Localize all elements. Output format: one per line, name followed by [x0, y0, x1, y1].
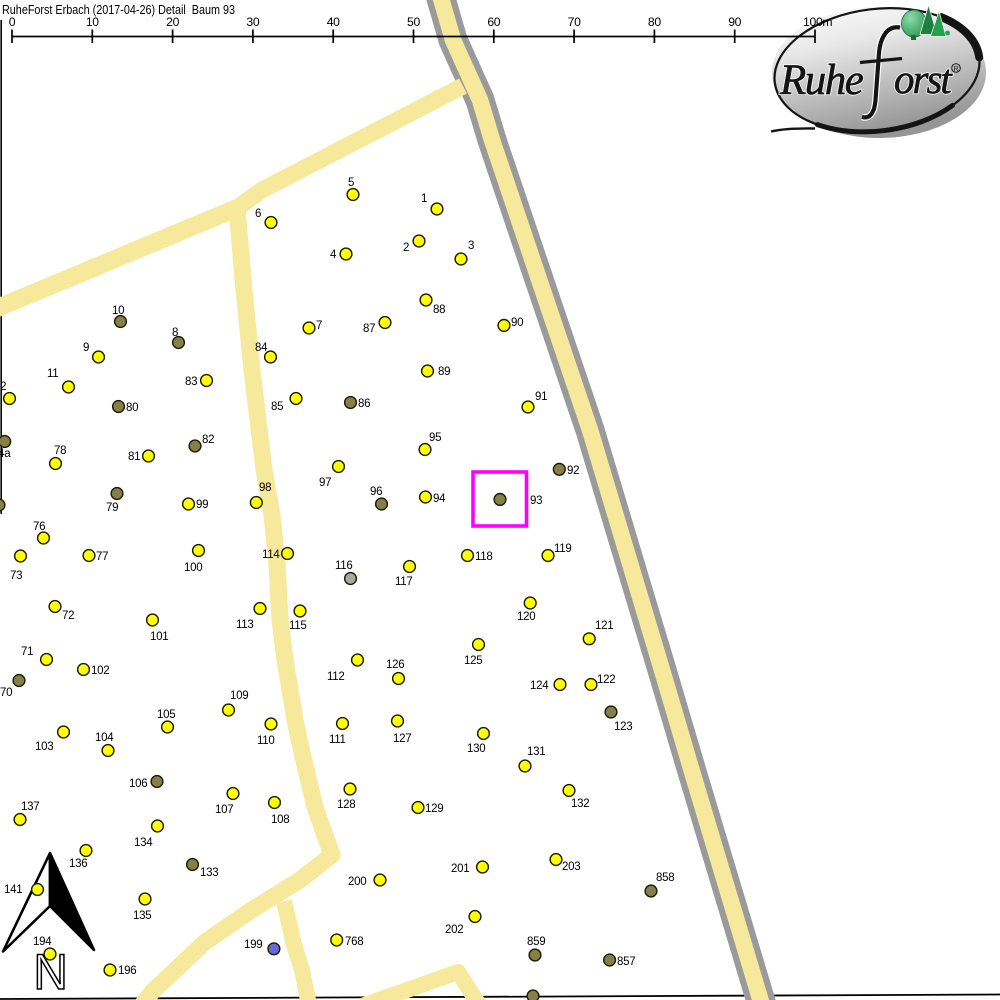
svg-text:88: 88: [433, 304, 445, 316]
svg-text:200: 200: [348, 876, 366, 888]
svg-text:137: 137: [21, 801, 39, 813]
svg-text:120: 120: [517, 611, 535, 623]
svg-text:82: 82: [202, 434, 214, 446]
svg-text:114: 114: [262, 549, 280, 561]
svg-text:124: 124: [530, 680, 549, 692]
svg-text:50: 50: [407, 15, 420, 29]
svg-text:70: 70: [568, 15, 581, 29]
svg-text:859: 859: [527, 936, 545, 948]
svg-text:71: 71: [21, 646, 33, 658]
svg-text:3: 3: [468, 240, 474, 252]
svg-text:105: 105: [157, 709, 175, 721]
svg-text:203: 203: [562, 861, 580, 873]
svg-text:127: 127: [393, 733, 411, 745]
svg-text:10: 10: [112, 305, 124, 317]
svg-text:133: 133: [200, 867, 218, 879]
svg-text:60: 60: [487, 15, 500, 29]
svg-text:113: 113: [236, 619, 253, 631]
svg-text:7: 7: [316, 320, 322, 332]
svg-text:96: 96: [370, 486, 382, 498]
svg-text:112: 112: [327, 671, 344, 683]
svg-text:85: 85: [271, 401, 283, 413]
svg-text:118: 118: [475, 551, 492, 563]
svg-text:108: 108: [271, 814, 289, 826]
svg-text:90: 90: [511, 317, 523, 329]
svg-text:110: 110: [257, 735, 274, 747]
svg-text:125: 125: [464, 655, 482, 667]
svg-text:77: 77: [96, 551, 108, 563]
svg-text:115: 115: [289, 620, 306, 632]
svg-text:1: 1: [421, 193, 427, 205]
svg-text:R: R: [954, 66, 959, 73]
svg-text:90: 90: [728, 15, 741, 29]
svg-text:20: 20: [166, 15, 179, 29]
svg-text:70: 70: [0, 687, 12, 699]
svg-text:101: 101: [150, 631, 168, 643]
svg-text:89: 89: [438, 366, 450, 378]
svg-text:80: 80: [126, 402, 138, 414]
svg-text:136: 136: [69, 858, 87, 870]
svg-text:78: 78: [54, 445, 66, 457]
svg-text:93: 93: [530, 495, 542, 507]
svg-text:95: 95: [429, 432, 441, 444]
svg-text:109: 109: [230, 690, 248, 702]
svg-text:135: 135: [133, 910, 151, 922]
svg-text:86: 86: [358, 398, 370, 410]
svg-text:134: 134: [134, 837, 153, 849]
svg-text:97: 97: [319, 477, 331, 489]
svg-text:100: 100: [184, 562, 202, 574]
svg-text:98: 98: [259, 482, 271, 494]
svg-text:199: 199: [244, 939, 262, 951]
svg-text:87: 87: [363, 323, 375, 335]
svg-text:129: 129: [425, 803, 443, 815]
svg-text:91: 91: [535, 391, 547, 403]
svg-text:30: 30: [246, 15, 259, 29]
svg-text:0: 0: [9, 15, 16, 29]
svg-text:6: 6: [255, 208, 261, 220]
svg-text:128: 128: [337, 799, 355, 811]
svg-text:11: 11: [47, 368, 58, 380]
svg-text:4: 4: [330, 249, 337, 261]
svg-text:8: 8: [172, 327, 178, 339]
svg-text:130: 130: [467, 743, 485, 755]
svg-text:201: 201: [451, 863, 469, 875]
svg-text:121: 121: [595, 620, 613, 632]
svg-text:92: 92: [567, 465, 579, 477]
svg-text:Ruhe: Ruhe: [779, 57, 864, 104]
svg-text:116: 116: [335, 560, 352, 572]
svg-text:RuheForst Erbach (2017-04-26): RuheForst Erbach (2017-04-26) Detail Bau…: [2, 2, 235, 17]
svg-text:858: 858: [656, 872, 674, 884]
svg-text:10: 10: [86, 15, 99, 29]
svg-text:117: 117: [395, 576, 412, 588]
svg-text:106: 106: [129, 778, 147, 790]
svg-text:74a: 74a: [0, 448, 11, 460]
svg-text:141: 141: [4, 884, 22, 896]
svg-text:131: 131: [527, 746, 545, 758]
svg-text:102: 102: [91, 665, 109, 677]
svg-text:40: 40: [327, 15, 340, 29]
svg-text:72: 72: [62, 610, 74, 622]
svg-text:73: 73: [10, 570, 22, 582]
svg-text:126: 126: [386, 659, 404, 671]
svg-text:196: 196: [118, 965, 136, 977]
svg-text:84: 84: [255, 342, 268, 354]
svg-text:857: 857: [617, 956, 635, 968]
svg-text:83: 83: [185, 376, 197, 388]
svg-text:194: 194: [33, 936, 52, 948]
svg-text:107: 107: [215, 804, 233, 816]
svg-text:76: 76: [33, 521, 45, 533]
svg-text:94: 94: [433, 493, 446, 505]
svg-text:99: 99: [196, 499, 208, 511]
svg-text:104: 104: [95, 732, 114, 744]
svg-text:123: 123: [614, 721, 632, 733]
svg-text:119: 119: [554, 543, 571, 555]
svg-text:100m: 100m: [803, 15, 832, 29]
svg-text:5: 5: [348, 177, 354, 189]
svg-text:132: 132: [571, 798, 589, 810]
svg-text:111: 111: [329, 734, 346, 746]
svg-text:80: 80: [648, 15, 661, 29]
svg-text:103: 103: [35, 741, 53, 753]
svg-text:81: 81: [128, 451, 140, 463]
svg-text:79: 79: [106, 502, 118, 514]
svg-text:202: 202: [445, 924, 463, 936]
svg-text:orst: orst: [894, 56, 953, 102]
svg-text:12: 12: [0, 381, 6, 393]
svg-text:122: 122: [597, 674, 615, 686]
svg-text:9: 9: [83, 342, 89, 354]
svg-text:768: 768: [345, 936, 363, 948]
svg-text:2: 2: [403, 242, 409, 254]
